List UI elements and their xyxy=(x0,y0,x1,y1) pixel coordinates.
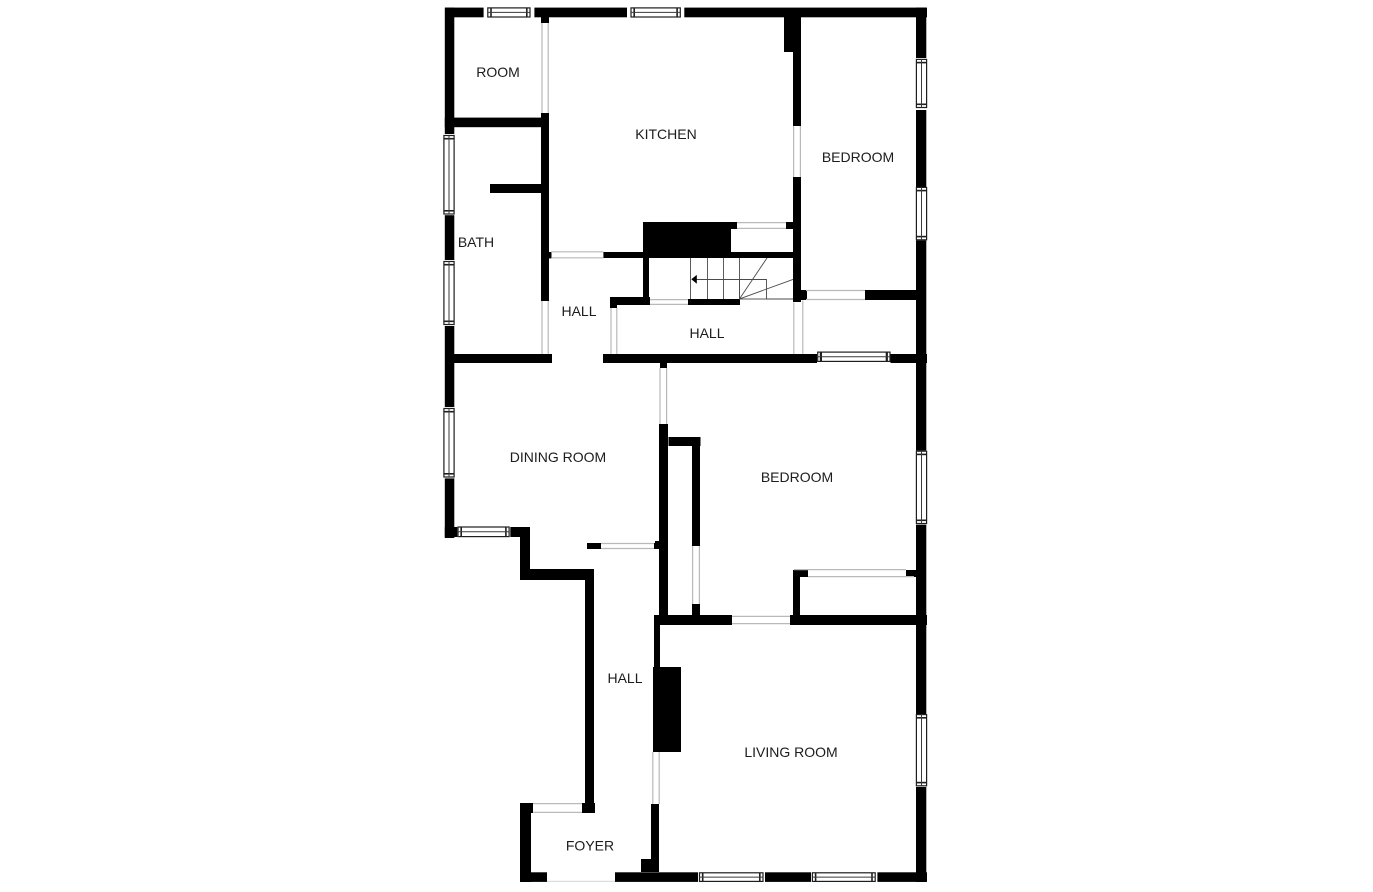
svg-text:ROOM: ROOM xyxy=(476,64,520,80)
svg-text:BEDROOM: BEDROOM xyxy=(761,469,833,485)
svg-text:KITCHEN: KITCHEN xyxy=(635,126,696,142)
svg-text:DINING ROOM: DINING ROOM xyxy=(510,449,606,465)
svg-text:BEDROOM: BEDROOM xyxy=(822,149,894,165)
svg-text:HALL: HALL xyxy=(607,670,642,686)
svg-text:FOYER: FOYER xyxy=(566,838,614,854)
svg-text:HALL: HALL xyxy=(561,303,596,319)
svg-text:HALL: HALL xyxy=(689,325,724,341)
svg-text:BATH: BATH xyxy=(458,234,494,250)
svg-text:LIVING ROOM: LIVING ROOM xyxy=(744,744,837,760)
